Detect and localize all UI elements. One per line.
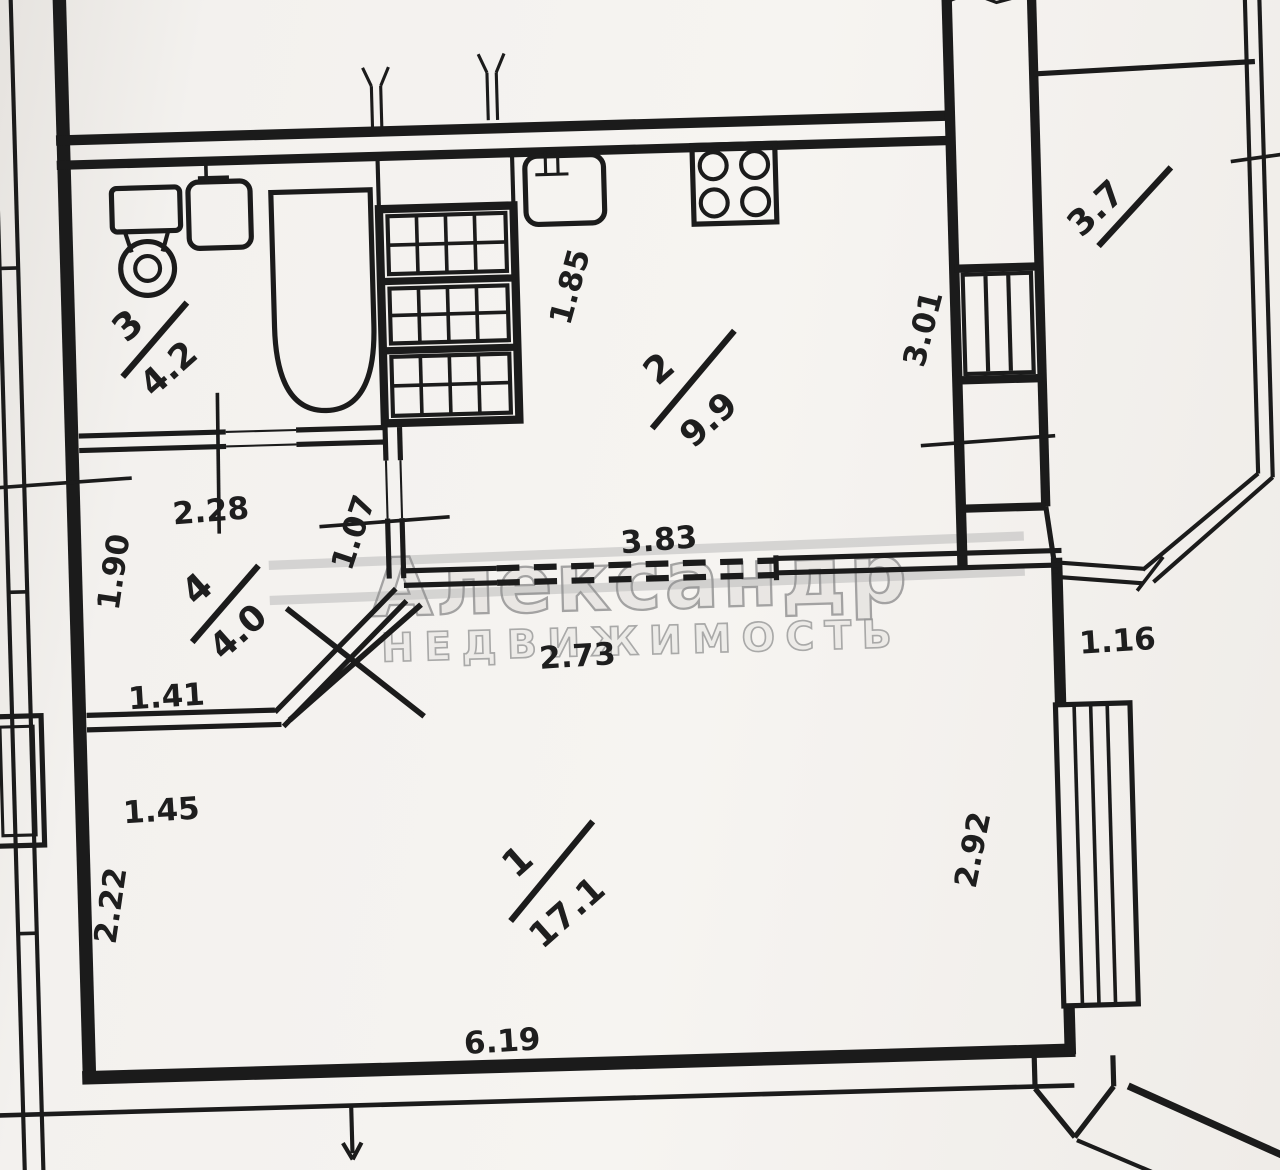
- lower-structure-line: [0, 1085, 1074, 1115]
- wall-joint: [9, 592, 28, 593]
- floorplan-photo: Александр НЕДВИЖИМОСТЬ: [0, 0, 1280, 1170]
- shaft-divider: [381, 278, 515, 282]
- column-divider: [954, 266, 1039, 268]
- dim-room1-left: 2.22: [88, 865, 135, 946]
- hall-kitchen-wall: [388, 519, 390, 579]
- balcony-label: 3.7: [1058, 167, 1173, 247]
- column-break-mark: [947, 0, 1032, 4]
- bathroom-wall: [296, 427, 387, 430]
- right-wall-lower: [1069, 1004, 1070, 1055]
- bay-angled-edge: [1035, 1087, 1075, 1138]
- toilet-icon: [111, 187, 182, 297]
- top-riser-tick: [363, 67, 391, 132]
- hall-kitchen-wall: [385, 423, 386, 460]
- room-number: 4: [173, 563, 222, 613]
- room1-window-pane-line: [1107, 703, 1115, 1004]
- bathroom-wall: [79, 432, 226, 436]
- dim-tick: [0, 478, 132, 488]
- dim-hall-left: 1.90: [91, 532, 138, 613]
- top-wall-inner: [57, 140, 951, 165]
- kitchen-fixtures: [524, 143, 777, 229]
- bay-angled-edge: [1073, 1086, 1115, 1137]
- balcony-parapet-stub: [1062, 561, 1145, 572]
- column-and-balcony: [946, 0, 1280, 596]
- dim-right-segment: 1.16: [1078, 621, 1157, 662]
- room-4-label: 4 4.0: [172, 561, 276, 669]
- room1-window-pane-line: [1074, 704, 1082, 1005]
- room-area: 4.2: [132, 333, 206, 405]
- hall-bottom-wall: [87, 724, 282, 729]
- room-area: 3.7: [1059, 172, 1132, 245]
- partition-solid: [404, 583, 497, 586]
- building-exterior-wall-line: [11, 0, 45, 1170]
- partition-solid: [404, 568, 497, 571]
- shaft-connector: [512, 155, 513, 206]
- floorplan-rotation-wrap: Александр НЕДВИЖИМОСТЬ: [0, 0, 1280, 1170]
- kitchen-door-opening: [400, 460, 402, 518]
- shaft-hatch-grid: [389, 285, 508, 343]
- bathtub-icon: [271, 190, 376, 412]
- vent-grille-line: [985, 276, 988, 371]
- dim-kitchen-right: 3.01: [897, 287, 951, 370]
- bathroom-wall: [296, 442, 387, 445]
- bathroom-wall: [79, 446, 226, 450]
- building-exterior-wall-line: [0, 0, 26, 1170]
- right-wall-upper: [1057, 558, 1061, 707]
- dim-room1-top: 2.73: [538, 636, 617, 677]
- bottom-wall: [82, 1050, 1075, 1078]
- top-wall-outer: [56, 116, 950, 141]
- room-number: 2: [634, 343, 683, 393]
- kitchen-sink-icon: [524, 150, 605, 225]
- shaft-hatch-grid: [391, 354, 511, 416]
- dim-tick: [921, 436, 1056, 446]
- dim-partition-top: 3.83: [619, 519, 698, 561]
- column-divider: [961, 506, 1046, 508]
- bottom-riser-tick: [351, 1106, 352, 1154]
- room-3-label: 3 4.2: [103, 298, 207, 406]
- stove-icon: [692, 143, 777, 224]
- room-number: 3: [103, 300, 152, 350]
- room-area: 4.0: [201, 596, 275, 668]
- washbasin-icon: [187, 162, 251, 249]
- balcony-glazing: [1244, 0, 1258, 474]
- glazing-tick: [1231, 154, 1280, 162]
- room-2-label: 2 9.9: [634, 331, 747, 458]
- diagonal-neighbour-wall: [1077, 1138, 1162, 1170]
- bathroom-door-opening: [226, 430, 296, 432]
- dim-room1-bottom: 6.19: [463, 1021, 542, 1062]
- wall-joint: [18, 933, 37, 934]
- bay-edge: [1034, 1058, 1035, 1089]
- bay-edge: [1113, 1055, 1114, 1086]
- bathroom-door-opening: [226, 444, 296, 446]
- balcony-top-wall: [1033, 62, 1255, 74]
- floorplan-svg: Александр НЕДВИЖИМОСТЬ: [0, 0, 1280, 1170]
- shaft-divider: [383, 347, 517, 351]
- balcony-parapet-stub: [1062, 575, 1143, 586]
- balcony-glazing: [1258, 0, 1272, 477]
- room1-window-pane-line: [1091, 704, 1099, 1005]
- vent-grille-line: [1008, 275, 1011, 370]
- column-vent-grille: [963, 273, 1034, 374]
- dim-kitchen-top: 1.85: [543, 245, 598, 328]
- top-riser-tick: [478, 53, 506, 120]
- diagonal-neighbour-wall: [1128, 1081, 1280, 1170]
- balcony-angled-glazing: [1151, 477, 1276, 582]
- shaft-connector: [378, 158, 379, 209]
- radiator-icon: [0, 716, 45, 847]
- hall-kitchen-wall: [400, 427, 401, 460]
- dim-room1-left-upper: 1.45: [122, 791, 201, 832]
- column-divider: [957, 378, 1042, 380]
- dim-hall-bottom: 1.41: [127, 677, 206, 718]
- balcony-angled-glazing: [1140, 474, 1261, 570]
- room-area: 17.1: [521, 869, 613, 957]
- shaft-hatch-grid: [387, 213, 507, 274]
- hall-angled-opening: [272, 589, 400, 712]
- kitchen-door-opening: [386, 461, 388, 519]
- wall-joint: [0, 268, 18, 269]
- vent-shafts: [378, 155, 520, 424]
- dim-room1-right: 2.92: [948, 809, 998, 891]
- room-1-label: 1 17.1: [492, 821, 615, 958]
- room-number: 1: [493, 836, 542, 886]
- dim-bath-door: 2.28: [171, 490, 250, 532]
- column-left-edge: [946, 0, 963, 566]
